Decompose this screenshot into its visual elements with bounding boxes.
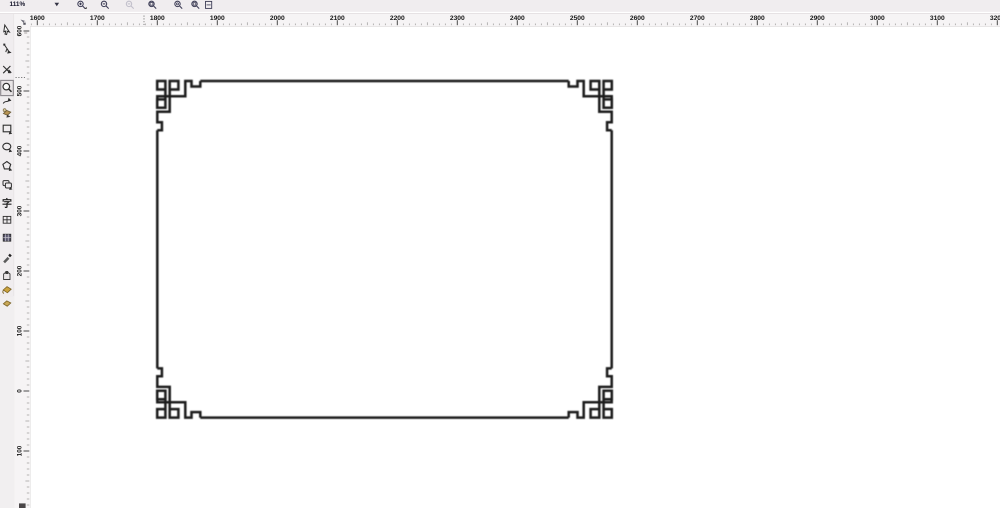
svg-text:300: 300	[17, 205, 24, 216]
svg-text:2100: 2100	[330, 15, 345, 22]
svg-text:2700: 2700	[690, 15, 705, 22]
svg-text:1800: 1800	[150, 15, 165, 22]
svg-text:600: 600	[17, 25, 24, 36]
svg-text:400: 400	[17, 145, 24, 156]
svg-text:2500: 2500	[570, 15, 585, 22]
svg-text:2600: 2600	[630, 15, 645, 22]
svg-text:100: 100	[17, 325, 24, 336]
svg-text:0: 0	[17, 389, 24, 393]
svg-text:3100: 3100	[930, 15, 945, 22]
svg-text:3000: 3000	[870, 15, 885, 22]
svg-text:1700: 1700	[90, 15, 105, 22]
svg-text:500: 500	[17, 85, 24, 96]
svg-text:2800: 2800	[750, 15, 765, 22]
svg-text:1600: 1600	[30, 15, 45, 22]
svg-text:2300: 2300	[450, 15, 465, 22]
svg-text:100: 100	[17, 445, 24, 456]
svg-text:2400: 2400	[510, 15, 525, 22]
svg-text:111%: 111%	[10, 1, 26, 8]
svg-text:字: 字	[2, 197, 12, 210]
svg-text:1900: 1900	[210, 15, 225, 22]
svg-text:200: 200	[17, 265, 24, 276]
svg-text:2900: 2900	[810, 15, 825, 22]
svg-text:2200: 2200	[390, 15, 405, 22]
svg-text:3200: 3200	[990, 15, 1000, 22]
svg-text:2000: 2000	[270, 15, 285, 22]
